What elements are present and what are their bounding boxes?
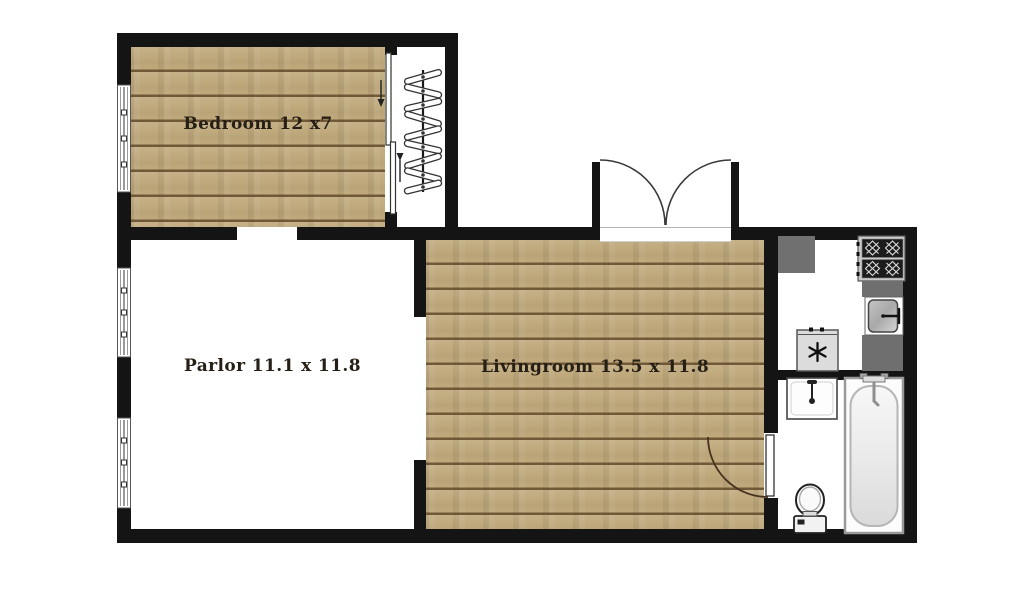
parlor-window-upper <box>118 268 131 357</box>
fixtures-overlay <box>0 0 1024 598</box>
bathroom-door <box>708 433 778 498</box>
floorplan: Bedroom 12 x7 Parlor 11.1 x 11.8 Livingr… <box>0 0 1024 598</box>
slide-arrow-down-icon <box>378 99 385 107</box>
entry-double-door-swing <box>600 160 731 225</box>
appliance-asterisk <box>797 328 838 372</box>
slide-arrow-up-icon <box>397 153 404 161</box>
parlor-window-lower <box>118 418 131 508</box>
closet-hangers <box>404 69 442 195</box>
toilet <box>794 485 826 534</box>
bathroom-sink <box>787 378 837 419</box>
bedroom-window <box>118 85 131 192</box>
stove <box>857 236 906 281</box>
bathtub <box>845 374 903 534</box>
kitchen-sink <box>865 297 903 335</box>
kitchen-corner-counter <box>778 236 815 273</box>
closet-sliding-door <box>378 53 404 214</box>
